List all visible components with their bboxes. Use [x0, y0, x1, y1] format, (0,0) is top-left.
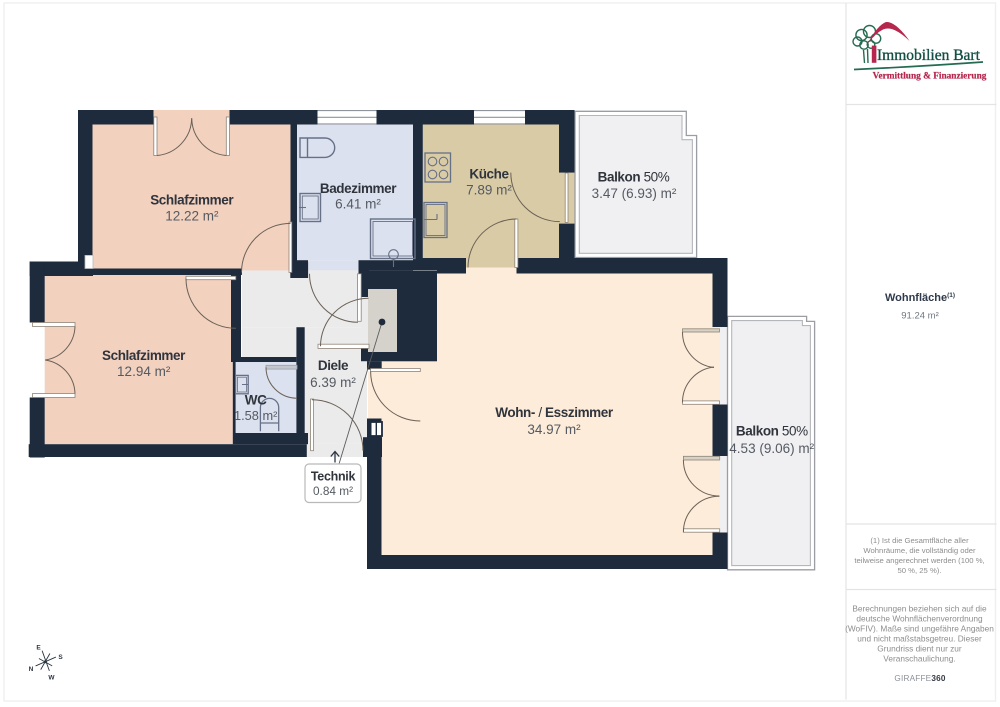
svg-text:6.39 m²: 6.39 m²: [310, 375, 356, 390]
svg-text:(1) Ist die Gesamtfläche aller: (1) Ist die Gesamtfläche aller: [870, 536, 969, 545]
svg-text:(WoFIV). Maße sind ungefähre A: (WoFIV). Maße sind ungefähre Angaben: [845, 624, 994, 634]
svg-text:50 %, 25 %).: 50 %, 25 %).: [897, 566, 941, 575]
svg-text:7.89 m²: 7.89 m²: [466, 183, 512, 198]
svg-text:12.94 m²: 12.94 m²: [117, 364, 171, 379]
svg-text:N: N: [29, 666, 34, 673]
svg-text:S: S: [58, 654, 63, 661]
svg-text:W: W: [48, 675, 55, 682]
svg-text:Wohn- / Esszimmer: Wohn- / Esszimmer: [495, 405, 614, 420]
svg-text:Berechnungen beziehen sich auf: Berechnungen beziehen sich auf die: [852, 604, 987, 614]
svg-text:1.58 m²: 1.58 m²: [234, 408, 278, 423]
svg-text:0.84 m²: 0.84 m²: [313, 484, 353, 498]
svg-text:Küche: Küche: [469, 167, 509, 182]
svg-text:teilweise angerechnet werden (: teilweise angerechnet werden (100 %,: [854, 556, 984, 565]
svg-text:4.53 (9.06) m²: 4.53 (9.06) m²: [729, 441, 814, 456]
svg-text:Vermittlung & Finanzierung: Vermittlung & Finanzierung: [873, 72, 987, 82]
svg-text:GIRAFFE360: GIRAFFE360: [894, 674, 945, 683]
svg-text:Schlafzimmer: Schlafzimmer: [150, 193, 234, 208]
svg-text:Immobilien Bart: Immobilien Bart: [877, 47, 981, 64]
svg-text:12.22 m²: 12.22 m²: [165, 209, 219, 224]
svg-text:Grundriss dient nur zur: Grundriss dient nur zur: [877, 644, 962, 654]
svg-text:34.97 m²: 34.97 m²: [527, 422, 581, 437]
svg-text:Badezimmer: Badezimmer: [320, 181, 397, 196]
svg-text:Balkon 50%: Balkon 50%: [598, 170, 670, 185]
svg-text:Balkon 50%: Balkon 50%: [736, 423, 808, 438]
svg-text:deutsche Wohnflächenverordnung: deutsche Wohnflächenverordnung: [856, 614, 983, 624]
svg-text:E: E: [36, 645, 41, 652]
svg-text:Wohnfläche(1): Wohnfläche(1): [885, 292, 955, 304]
svg-text:und nicht maßstabsgetreu. Dies: und nicht maßstabsgetreu. Dieser: [857, 634, 982, 644]
svg-text:Veranschaulichung.: Veranschaulichung.: [883, 654, 955, 664]
svg-text:Diele: Diele: [318, 358, 349, 373]
svg-text:91.24 m²: 91.24 m²: [901, 311, 939, 322]
svg-text:Schlafzimmer: Schlafzimmer: [102, 348, 186, 363]
svg-text:3.47 (6.93) m²: 3.47 (6.93) m²: [592, 186, 677, 201]
svg-text:Technik: Technik: [311, 470, 356, 484]
svg-text:WC: WC: [245, 393, 267, 408]
svg-text:Wohnräume, die vollständig ode: Wohnräume, die vollständig oder: [863, 546, 976, 555]
svg-text:6.41 m²: 6.41 m²: [335, 197, 381, 212]
